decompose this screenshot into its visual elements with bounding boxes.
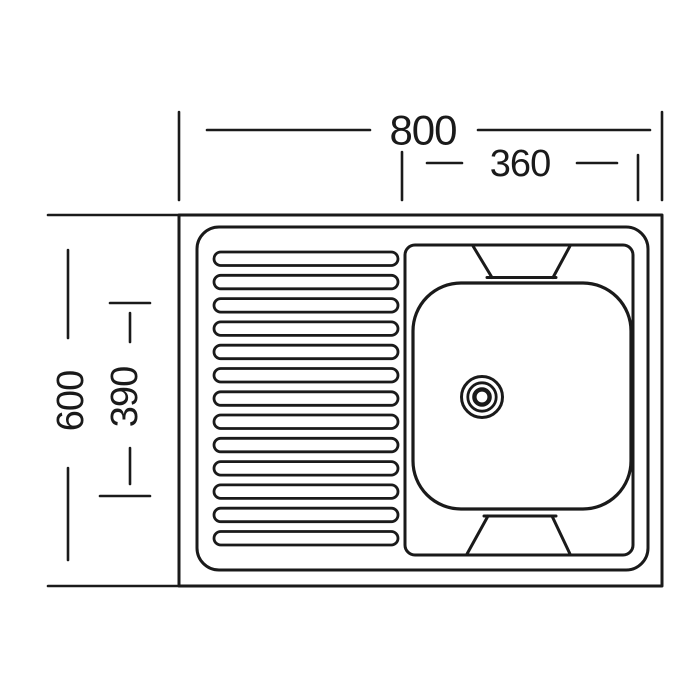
sink-dimension-diagram: 800 360 600 390: [0, 0, 700, 700]
bowl: [413, 283, 631, 509]
drainboard-rib: [214, 438, 398, 452]
drainboard-rib: [214, 322, 398, 336]
drainboard-rib: [214, 485, 398, 499]
dim-label-overall-depth: 600: [50, 371, 92, 431]
dim-label-bowl-width: 360: [490, 143, 550, 185]
drain-icon: [462, 377, 503, 418]
dim-label-overall-width: 800: [389, 107, 456, 154]
drainboard-rib: [214, 275, 398, 289]
drainboard-rib: [214, 532, 398, 546]
drainboard-rib: [214, 508, 398, 522]
drainboard-rib: [214, 369, 398, 383]
dim-label-bowl-depth: 390: [104, 367, 146, 427]
drain-inner-ring: [474, 389, 489, 404]
drainboard-ribs: [214, 252, 398, 545]
drainboard-rib: [214, 415, 398, 429]
sink-drawing: [48, 112, 662, 586]
sink-rim: [197, 227, 648, 570]
faucet-ledge-bottom: [467, 516, 570, 554]
drainboard-rib: [214, 299, 398, 313]
drain-middle-ring: [468, 383, 496, 411]
drainboard-rib: [214, 345, 398, 359]
drainboard-rib: [214, 252, 398, 266]
drainboard-rib: [214, 462, 398, 476]
faucet-ledge-top: [473, 246, 570, 278]
drainboard-rib: [214, 392, 398, 406]
diagram-svg: 800 360 600 390: [0, 0, 700, 700]
